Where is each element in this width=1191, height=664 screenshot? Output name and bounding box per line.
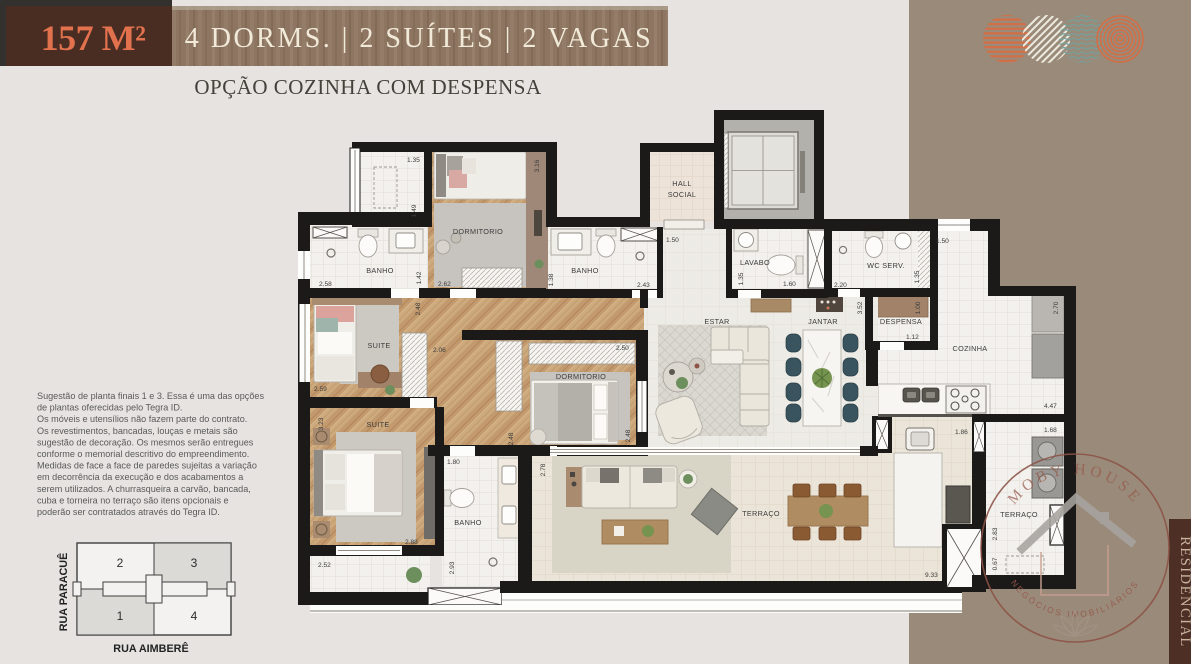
svg-text:HALL: HALL	[672, 179, 691, 188]
svg-text:2.93: 2.93	[449, 561, 456, 574]
svg-text:2.70: 2.70	[1053, 301, 1060, 314]
svg-text:2.83: 2.83	[992, 527, 999, 540]
svg-text:2.06: 2.06	[433, 347, 446, 354]
svg-text:2.58: 2.58	[319, 281, 332, 288]
svg-text:DORMITORIO: DORMITORIO	[556, 372, 606, 381]
svg-text:2.78: 2.78	[540, 463, 547, 476]
svg-text:1.12: 1.12	[906, 334, 919, 341]
svg-text:OPÇÃO COZINHA COM DESPENSA: OPÇÃO COZINHA COM DESPENSA	[194, 75, 542, 99]
svg-text:2.88: 2.88	[405, 539, 418, 546]
svg-text:poderão ser contratados atravé: poderão ser contratados através do Tegra…	[37, 507, 220, 517]
svg-text:WC SERV.: WC SERV.	[867, 261, 905, 270]
svg-text:2.48: 2.48	[508, 432, 515, 445]
svg-text:RUA AIMBERÊ: RUA AIMBERÊ	[113, 642, 188, 655]
svg-text:2.43: 2.43	[637, 282, 650, 289]
svg-text:4 DORMS. | 2 SUÍTES | 2 VAGAS: 4 DORMS. | 2 SUÍTES | 2 VAGAS	[185, 23, 654, 54]
svg-text:Os móveis e utensílios não faz: Os móveis e utensílios não fazem parte d…	[37, 414, 247, 424]
svg-text:1.50: 1.50	[936, 238, 949, 245]
svg-text:1.80: 1.80	[447, 459, 460, 466]
svg-text:3.16: 3.16	[534, 159, 541, 172]
svg-text:4: 4	[191, 609, 198, 623]
svg-text:sugestão de decoração. Os mesm: sugestão de decoração. Os mesmos serão e…	[37, 437, 254, 447]
svg-text:1.86: 1.86	[955, 429, 968, 436]
svg-text:conforme o memorial descritiv: conforme o memorial descritivo do empree…	[37, 449, 249, 459]
svg-text:1.35: 1.35	[407, 157, 420, 164]
svg-text:2.62: 2.62	[438, 281, 451, 288]
svg-text:JANTAR: JANTAR	[808, 317, 838, 326]
svg-text:2.59: 2.59	[314, 386, 327, 393]
svg-text:BANHO: BANHO	[454, 518, 481, 527]
svg-text:157 M²: 157 M²	[41, 18, 146, 58]
svg-text:Medidas de face a face de pare: Medidas de face a face de paredes sujeit…	[37, 461, 257, 471]
svg-text:SOCIAL: SOCIAL	[668, 190, 697, 199]
svg-text:1.49: 1.49	[411, 204, 418, 217]
svg-text:1.35: 1.35	[738, 272, 745, 285]
svg-text:SUITE: SUITE	[367, 420, 390, 429]
svg-text:Os revestimentos, bancadas, lo: Os revestimentos, bancadas, louças e met…	[37, 426, 238, 436]
svg-text:2: 2	[117, 556, 124, 570]
svg-text:Sugestão de planta finais 1 e: Sugestão de planta finais 1 e 3. Essa é …	[37, 391, 264, 401]
svg-text:1.35: 1.35	[914, 270, 921, 283]
svg-text:TERRAÇO: TERRAÇO	[1000, 510, 1038, 519]
svg-text:1: 1	[117, 609, 124, 623]
svg-text:2.20: 2.20	[834, 282, 847, 289]
svg-text:LAVABO: LAVABO	[740, 258, 770, 267]
svg-text:1.42: 1.42	[416, 271, 423, 284]
svg-text:2.48: 2.48	[625, 429, 632, 442]
svg-text:BANHO: BANHO	[366, 266, 393, 275]
svg-text:DESPENSA: DESPENSA	[880, 317, 922, 326]
svg-text:serem utilizados. A churrasque: serem utilizados. A churrasqueira a carv…	[37, 484, 251, 494]
svg-text:1.68: 1.68	[1044, 427, 1057, 434]
svg-text:2.50: 2.50	[616, 345, 629, 352]
svg-text:RUA PARACUÊ: RUA PARACUÊ	[57, 553, 70, 632]
svg-text:RESIDENCIAL: RESIDENCIAL	[1177, 536, 1191, 648]
svg-text:1.50: 1.50	[666, 237, 679, 244]
svg-text:1.00: 1.00	[915, 301, 922, 314]
svg-text:2.48: 2.48	[415, 302, 422, 315]
svg-text:0.67: 0.67	[992, 557, 999, 570]
svg-text:SUITE: SUITE	[368, 341, 391, 350]
svg-text:9.33: 9.33	[925, 572, 938, 579]
svg-text:ESTAR: ESTAR	[704, 317, 729, 326]
svg-text:1.38: 1.38	[548, 273, 555, 286]
svg-text:TERRAÇO: TERRAÇO	[742, 509, 780, 518]
svg-text:BANHO: BANHO	[571, 266, 598, 275]
svg-text:4.47: 4.47	[1044, 403, 1057, 410]
svg-text:3.23: 3.23	[318, 417, 325, 430]
svg-text:cuba e torneira no terraço são: cuba e torneira no terraço são itens opc…	[37, 495, 229, 505]
svg-text:1.60: 1.60	[783, 281, 796, 288]
svg-text:2.52: 2.52	[318, 562, 331, 569]
svg-text:em decorrência da execução e d: em decorrência da execução e dos acabame…	[37, 472, 244, 482]
svg-text:COZINHA: COZINHA	[953, 344, 988, 353]
svg-text:3.52: 3.52	[857, 301, 864, 314]
svg-text:de plantas oferecidas pelo Teg: de plantas oferecidas pelo Tegra ID.	[37, 403, 182, 413]
svg-text:DORMITORIO: DORMITORIO	[453, 227, 503, 236]
svg-text:3: 3	[191, 556, 198, 570]
